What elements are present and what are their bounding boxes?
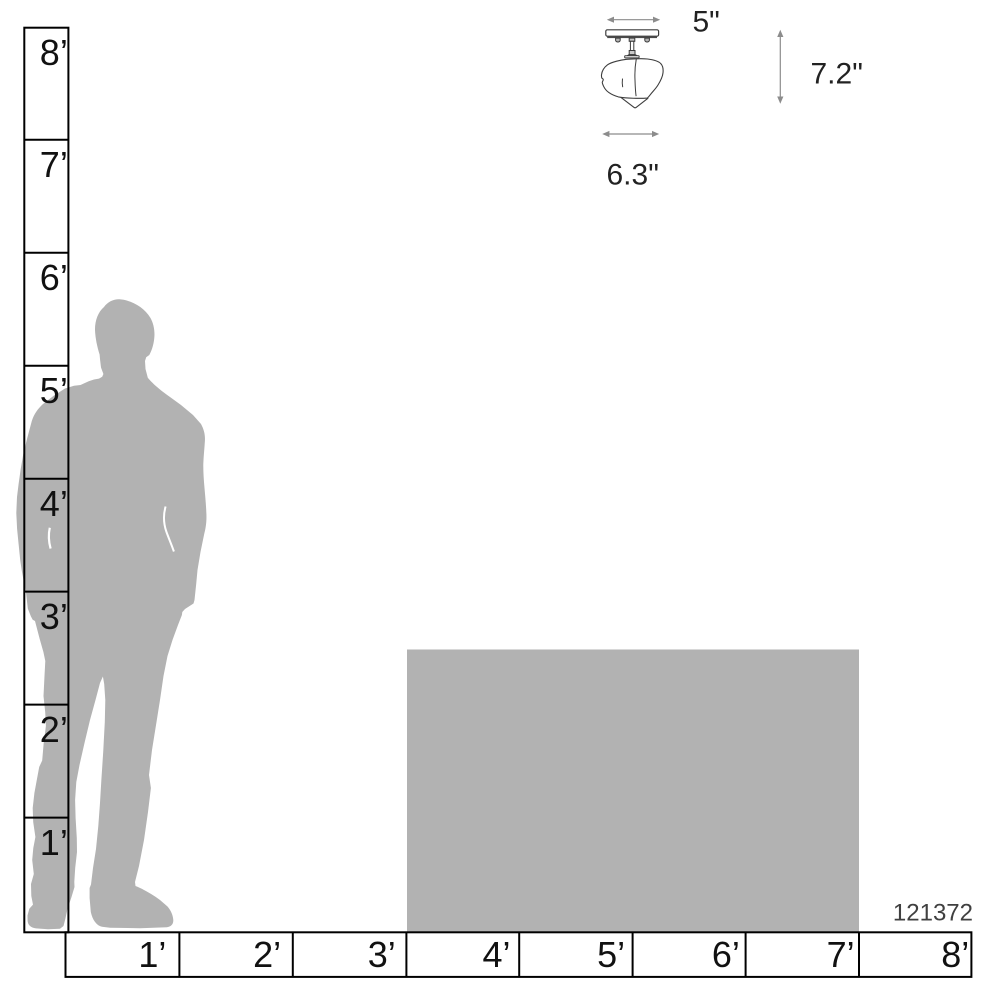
- svg-text:3’: 3’: [368, 934, 396, 975]
- svg-text:1’: 1’: [138, 934, 166, 975]
- svg-text:7’: 7’: [827, 934, 855, 975]
- svg-text:8’: 8’: [941, 934, 969, 975]
- svg-text:6’: 6’: [40, 257, 68, 298]
- svg-text:6.3": 6.3": [607, 159, 659, 192]
- svg-text:7’: 7’: [40, 144, 68, 185]
- svg-text:4’: 4’: [482, 934, 510, 975]
- svg-text:1’: 1’: [40, 822, 68, 863]
- svg-text:7.2": 7.2": [811, 58, 863, 91]
- svg-text:5’: 5’: [40, 370, 68, 411]
- svg-text:5’: 5’: [597, 934, 625, 975]
- svg-text:4’: 4’: [40, 483, 68, 524]
- svg-text:2’: 2’: [40, 709, 68, 750]
- svg-text:2’: 2’: [253, 934, 281, 975]
- svg-text:3’: 3’: [40, 596, 68, 637]
- svg-text:5": 5": [693, 6, 720, 39]
- svg-text:121372: 121372: [893, 900, 973, 927]
- svg-text:8’: 8’: [40, 32, 68, 73]
- svg-text:6’: 6’: [712, 934, 740, 975]
